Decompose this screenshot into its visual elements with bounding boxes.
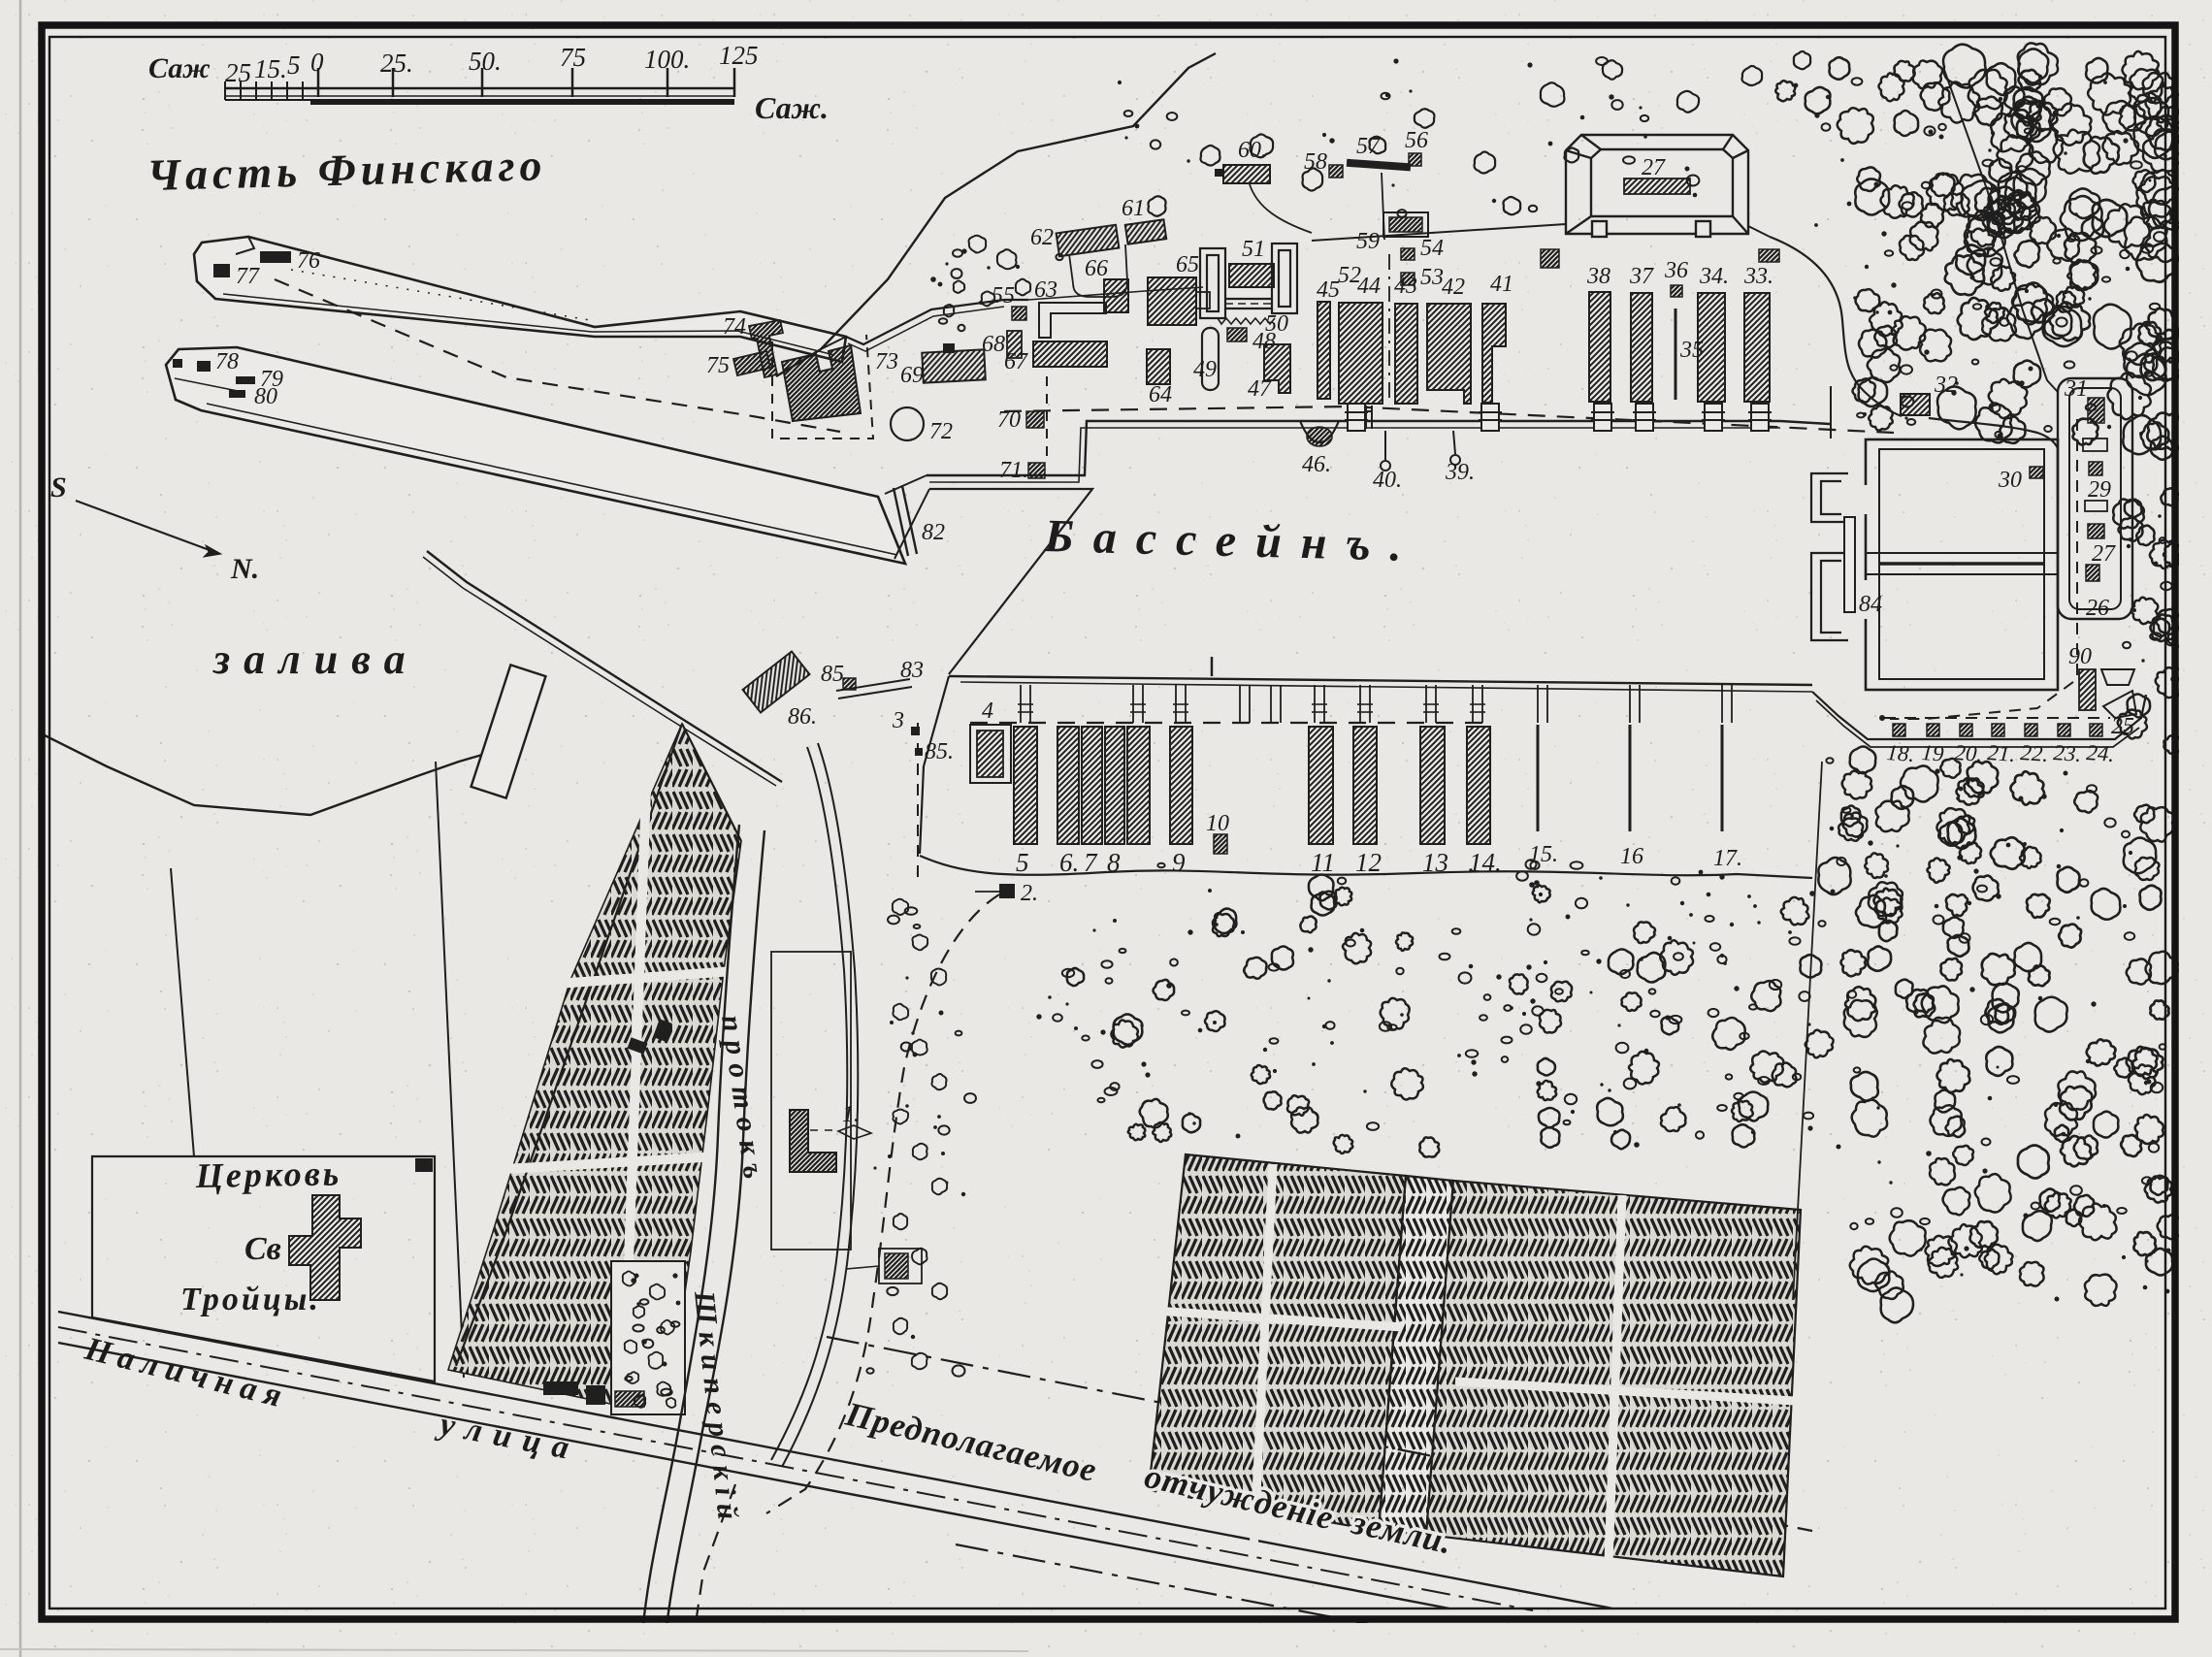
svg-text:64: 64 <box>1149 382 1172 407</box>
svg-text:0: 0 <box>310 48 324 77</box>
svg-text:47: 47 <box>1248 376 1272 402</box>
svg-text:75: 75 <box>560 43 586 72</box>
svg-text:67: 67 <box>1004 349 1028 374</box>
svg-text:51: 51 <box>1242 237 1265 262</box>
svg-text:9: 9 <box>1172 848 1186 877</box>
svg-text:11: 11 <box>1311 848 1335 877</box>
svg-text:4: 4 <box>982 699 993 724</box>
svg-text:31: 31 <box>2064 376 2088 402</box>
svg-text:Св: Св <box>244 1231 281 1267</box>
svg-text:27: 27 <box>2092 541 2116 567</box>
svg-text:86.: 86. <box>788 704 817 730</box>
svg-text:45: 45 <box>1317 277 1340 303</box>
svg-text:46.: 46. <box>1302 452 1331 477</box>
svg-text:56: 56 <box>1405 128 1428 153</box>
svg-text:73: 73 <box>875 349 898 374</box>
svg-text:Часть Финскаго: Часть Финскаго <box>146 140 547 200</box>
svg-text:85: 85 <box>821 662 844 687</box>
svg-text:Саж: Саж <box>148 52 211 84</box>
svg-text:2.: 2. <box>1021 881 1038 906</box>
svg-text:49: 49 <box>1193 357 1217 382</box>
svg-text:5: 5 <box>287 50 301 80</box>
svg-text:40.: 40. <box>1373 468 1402 493</box>
svg-text:34.: 34. <box>1699 264 1729 289</box>
svg-text:39.: 39. <box>1445 460 1475 485</box>
svg-text:13: 13 <box>1422 848 1448 877</box>
svg-text:42: 42 <box>1442 275 1465 300</box>
svg-text:Церковь: Церковь <box>194 1153 342 1195</box>
svg-text:25: 25 <box>2111 714 2134 739</box>
svg-text:68: 68 <box>982 332 1005 357</box>
svg-text:24.: 24. <box>2086 740 2115 766</box>
svg-text:22.: 22. <box>2020 740 2049 766</box>
svg-text:69: 69 <box>900 363 924 388</box>
svg-text:78: 78 <box>215 349 239 374</box>
svg-text:83: 83 <box>900 658 924 683</box>
svg-text:10: 10 <box>1206 811 1229 836</box>
svg-text:41: 41 <box>1490 272 1513 297</box>
svg-text:15.: 15. <box>1529 842 1558 867</box>
svg-text:54: 54 <box>1420 236 1444 261</box>
svg-text:1.: 1. <box>842 1102 860 1127</box>
svg-text:77: 77 <box>236 264 260 289</box>
svg-text:18.: 18. <box>1886 740 1915 766</box>
svg-text:66: 66 <box>1085 256 1108 281</box>
svg-text:71.: 71. <box>999 458 1028 483</box>
svg-text:33.: 33. <box>1743 264 1773 289</box>
svg-text:S: S <box>50 471 67 504</box>
svg-text:26: 26 <box>2086 596 2109 621</box>
svg-text:27: 27 <box>1642 155 1666 180</box>
svg-text:N.: N. <box>230 553 259 585</box>
svg-text:25: 25 <box>225 58 251 87</box>
svg-text:125: 125 <box>719 41 759 70</box>
svg-text:залива: залива <box>212 635 419 683</box>
svg-text:38: 38 <box>1586 264 1610 289</box>
svg-text:Тройцы.: Тройцы. <box>180 1282 321 1317</box>
svg-text:61: 61 <box>1122 196 1145 221</box>
svg-text:85.: 85. <box>925 739 954 764</box>
svg-text:37: 37 <box>1629 264 1654 289</box>
svg-text:80: 80 <box>254 384 277 409</box>
svg-text:8: 8 <box>1107 848 1121 877</box>
svg-text:90: 90 <box>2068 644 2092 669</box>
svg-text:52: 52 <box>1338 263 1361 288</box>
svg-text:60.: 60. <box>1238 138 1267 163</box>
svg-text:50.: 50. <box>469 47 502 76</box>
svg-text:82: 82 <box>922 520 945 545</box>
svg-text:25.: 25. <box>380 49 413 78</box>
svg-text:Саж.: Саж. <box>755 90 829 125</box>
svg-text:59: 59 <box>1356 229 1380 254</box>
svg-text:36: 36 <box>1664 258 1688 283</box>
svg-text:14.: 14. <box>1469 848 1502 877</box>
svg-text:74: 74 <box>723 314 746 340</box>
svg-text:5: 5 <box>1016 848 1029 877</box>
svg-text:3: 3 <box>892 708 904 733</box>
svg-text:12: 12 <box>1355 848 1382 877</box>
svg-text:50: 50 <box>1265 311 1288 337</box>
svg-text:17.: 17. <box>1713 846 1742 871</box>
svg-text:6.: 6. <box>1059 848 1079 877</box>
svg-text:72: 72 <box>929 419 953 444</box>
svg-text:76: 76 <box>297 248 320 274</box>
svg-text:100.: 100. <box>644 45 690 74</box>
svg-text:29: 29 <box>2088 477 2111 503</box>
svg-text:Бассейнъ.: Бассейнъ. <box>1043 510 1422 571</box>
svg-text:30: 30 <box>1998 468 2022 493</box>
svg-text:53: 53 <box>1420 265 1444 290</box>
svg-text:65: 65 <box>1176 252 1199 277</box>
svg-text:16: 16 <box>1620 844 1643 869</box>
svg-text:19.: 19. <box>1921 740 1950 766</box>
svg-text:75: 75 <box>706 353 730 378</box>
svg-text:15.: 15. <box>254 54 287 83</box>
svg-text:84: 84 <box>1859 592 1882 617</box>
svg-text:7: 7 <box>1084 848 1098 877</box>
svg-text:23.: 23. <box>2053 740 2082 766</box>
svg-text:62: 62 <box>1030 225 1054 250</box>
